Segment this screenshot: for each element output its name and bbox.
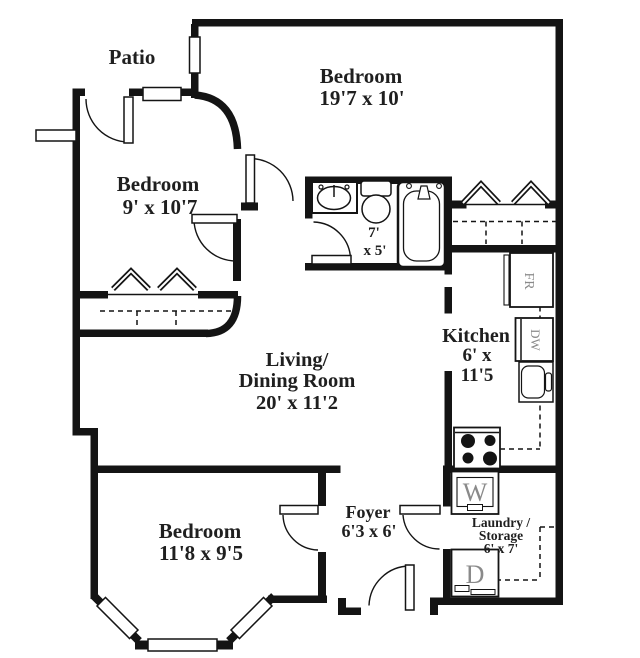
sink-handle-icon — [319, 185, 323, 189]
label-bedroom-top-dims: 19'7 x 10' — [319, 86, 404, 110]
kitchen-faucet-icon — [546, 373, 552, 391]
burner-icon — [485, 435, 496, 446]
wall-patio-b — [129, 89, 143, 97]
dryer-label: D — [466, 560, 485, 589]
label-living-dims: 20' x 11'2 — [256, 392, 338, 414]
window-patio — [143, 88, 181, 101]
bathtub-basin — [404, 191, 440, 261]
burner-icon — [461, 434, 475, 448]
sink-handle-icon — [345, 185, 349, 189]
floor-plan: FR DW W D Patio Bedroom 19'7 x 10' Bedro… — [0, 0, 640, 658]
wall-kitchen-west-c — [445, 371, 453, 469]
door-leaf-bedroom-left — [192, 215, 237, 224]
wall-lbcloset-corner-curve — [206, 296, 238, 334]
wall-curved-corner — [195, 95, 238, 149]
wall-closet-bottom — [445, 245, 561, 253]
wall-foyer-west-b — [318, 552, 326, 599]
wall-foyer-west-a — [318, 467, 326, 506]
tub-knob-icon — [407, 184, 412, 189]
wall-bedleft-east — [233, 219, 241, 281]
label-kitchen-dims-2: 11'5 — [461, 365, 494, 386]
fridge-side-panel — [504, 255, 509, 305]
window-bay-right — [231, 597, 272, 638]
wall-lbcloset-bottom — [76, 330, 208, 338]
label-living-1: Living/ — [266, 349, 329, 371]
dryer-detail — [455, 586, 469, 592]
label-bedroom-left: Bedroom — [117, 172, 200, 196]
label-kitchen-dims-1: 6' x — [462, 345, 492, 366]
hanger-chevron-icon — [463, 184, 499, 203]
door-arc-bathroom — [314, 222, 351, 259]
wall-patio-c — [181, 89, 196, 97]
door-arc-laundry — [403, 515, 440, 549]
wall-top — [192, 19, 563, 27]
hanger-chevron-icon — [513, 184, 549, 203]
label-bedroom-bottom-dims: 11'8 x 9'5 — [159, 541, 243, 565]
door-leaf-entry — [406, 565, 415, 610]
door-arc-patio — [86, 99, 129, 142]
wall-laundry-west-a — [443, 466, 451, 507]
wall-west-lower — [91, 428, 99, 599]
toilet-tank-icon — [361, 181, 391, 196]
window-bedroomtop-west — [190, 37, 201, 73]
wall-right — [556, 19, 564, 605]
label-bedroom-top: Bedroom — [320, 64, 403, 88]
label-bedroom-left-dims: 9' x 10'7 — [123, 195, 198, 219]
window-bay-bottom — [148, 639, 217, 651]
hanger-chevron-icon — [159, 271, 195, 289]
label-kitchen: Kitchen — [442, 325, 510, 347]
door-arc-hall — [250, 159, 293, 202]
burner-icon — [483, 452, 497, 466]
hanger-chevron-icon — [113, 271, 149, 289]
fridge-label: FR — [521, 272, 536, 290]
wall-lbcloset-top-left — [76, 291, 108, 299]
label-bedroom-bottom: Bedroom — [159, 519, 242, 543]
label-bathroom-dims-2: x 5' — [364, 243, 387, 259]
wall-patio-a — [73, 89, 85, 97]
door-leaf-laundry — [400, 506, 440, 515]
door-arc-bedroom-left — [194, 220, 236, 261]
label-living-2: Dining Room — [239, 370, 356, 392]
tub-knob-icon — [437, 184, 442, 189]
toilet-bowl-icon — [362, 195, 390, 223]
wall-living-bottom — [91, 466, 341, 474]
window-patio-rail — [36, 130, 76, 141]
wall-kitchen-west-b — [445, 287, 453, 314]
window-bay-left — [97, 597, 138, 638]
wall-laundry-west-b — [443, 549, 451, 605]
wall-laundry-bottom — [434, 598, 560, 606]
wall-lbcloset-top-right — [198, 291, 238, 299]
wall-foyer-south-west — [268, 596, 327, 604]
washer-label: W — [463, 478, 488, 507]
door-leaf-bedroom-bottom — [280, 506, 318, 515]
door-leaf-bathroom — [312, 256, 351, 265]
dishwasher-label: DW — [528, 329, 543, 351]
label-patio: Patio — [109, 45, 156, 69]
label-laundry-dims: 6' x 7' — [484, 541, 519, 556]
door-leaf-hall — [246, 155, 255, 203]
dryer-detail — [471, 590, 495, 595]
door-leaf-patio — [124, 97, 133, 143]
wall-entry-step-h — [338, 608, 361, 616]
washer-detail — [468, 505, 483, 511]
kitchen-sink-basin-icon — [522, 366, 545, 398]
burner-icon — [463, 453, 474, 464]
door-arc-entry — [369, 566, 410, 606]
door-arc-bedroom-bottom — [283, 515, 318, 550]
label-bathroom-dims-1: 7' — [368, 225, 380, 241]
label-foyer-dims: 6'3 x 6' — [341, 521, 396, 541]
label-foyer: Foyer — [346, 502, 391, 522]
